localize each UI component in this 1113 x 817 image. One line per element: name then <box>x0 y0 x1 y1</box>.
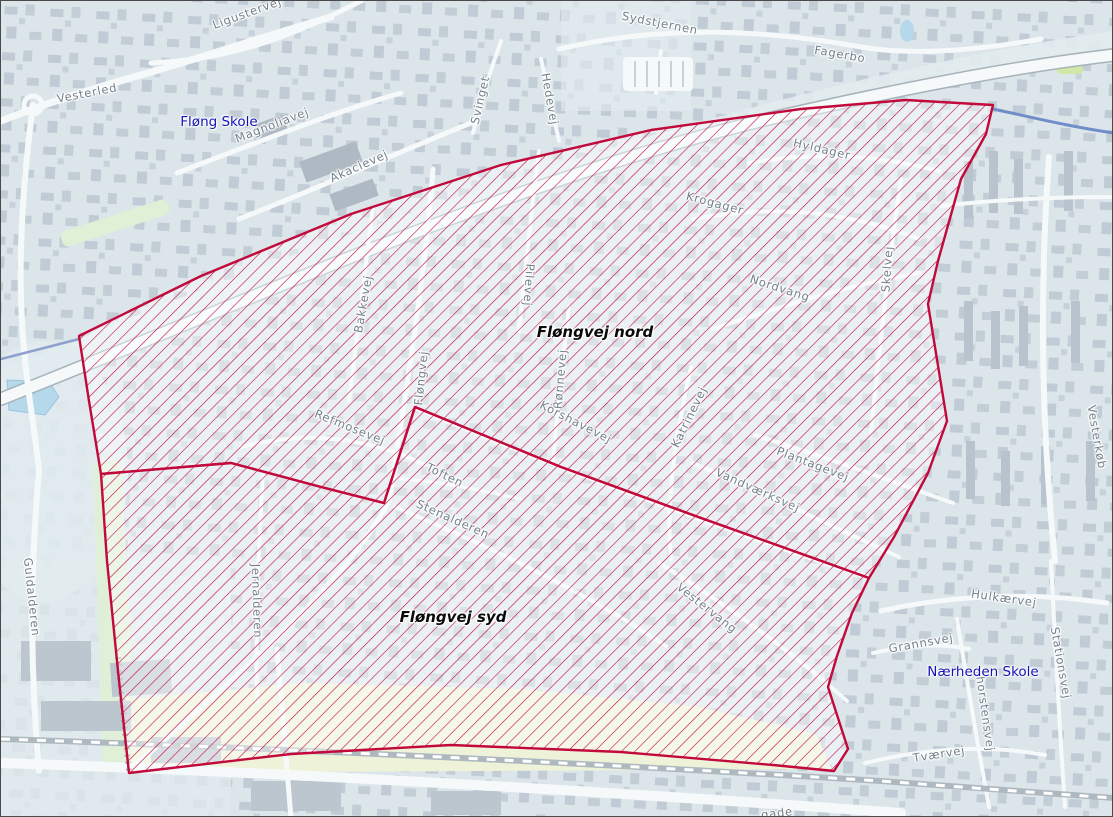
base-map <box>1 1 1113 817</box>
map-canvas[interactable]: LigustervejVesterledMagnoliavejAkacievej… <box>0 0 1113 817</box>
